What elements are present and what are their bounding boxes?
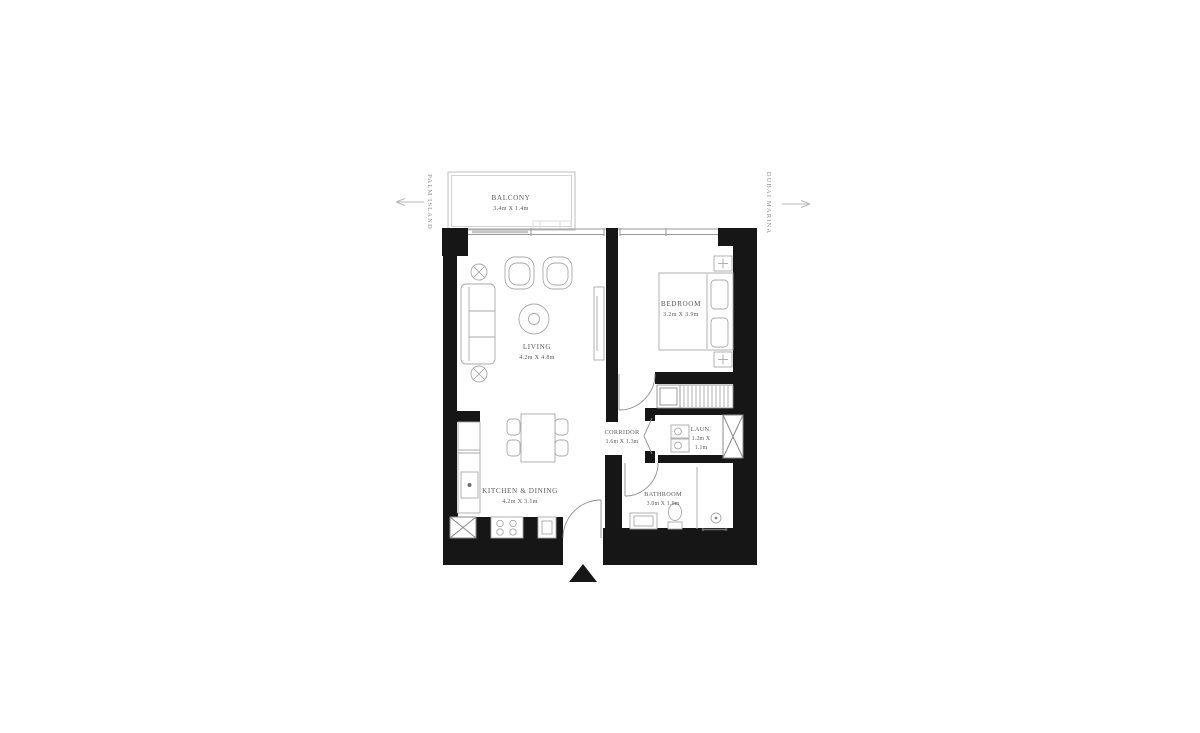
side-table-bottom (471, 366, 487, 382)
nightstand-bottom (714, 352, 732, 367)
dining-table-set (507, 414, 568, 462)
side-table-top (471, 264, 487, 280)
palm-island-label: PALM ISLAND (426, 174, 433, 230)
floor-plan-page: BALCONY 3.4m X 1.4m LIVING 4.2m X 4.8m B… (0, 0, 1200, 733)
dubai-marina-arrow-icon (782, 201, 810, 208)
washer-dryer-stack (671, 425, 689, 452)
balcony-lounge-sketch (533, 221, 571, 229)
shaft-closet-x (723, 415, 743, 458)
window-lines (448, 228, 755, 236)
compass-labels: PALM ISLAND DUBAI MARINA (426, 172, 772, 234)
dishwasher (538, 517, 556, 538)
laundry-label: LAUN. (691, 426, 712, 433)
laundry-bifold-door (644, 418, 652, 454)
entry-recess (563, 538, 603, 565)
entry-door (563, 500, 601, 538)
laundry-dims-1: 1.2m X (692, 436, 711, 442)
wardrobe (657, 385, 733, 408)
nightstand-top (714, 256, 732, 271)
entry-triangle-marker (569, 564, 597, 582)
armchair-2 (543, 257, 572, 289)
balcony-dims: 3.4m X 1.4m (493, 206, 528, 212)
bedroom-dims: 3.2m X 3.9m (663, 312, 698, 318)
dubai-marina-label: DUBAI MARINA (765, 172, 772, 234)
tv-console (594, 287, 604, 360)
coffee-table (519, 304, 549, 334)
armchair-1 (505, 257, 534, 289)
laundry-dims-2: 1.1m (695, 445, 708, 451)
toilet (668, 504, 682, 530)
sofa (461, 284, 495, 364)
bedroom-label: BEDROOM (661, 300, 701, 308)
kitchen-shaft-x (450, 517, 476, 538)
bathroom-label: BATHROOM (644, 491, 682, 498)
corridor-dims: 1.6m X 1.3m (606, 439, 639, 445)
cooktop (491, 517, 523, 538)
bathroom-dims: 3.0m X 1.9m (647, 501, 680, 507)
floor-plan-drawing: BALCONY 3.4m X 1.4m LIVING 4.2m X 4.8m B… (0, 0, 1200, 733)
corridor-label: CORRIDOR (605, 429, 640, 436)
living-dims: 4.2m X 4.8m (519, 355, 554, 361)
palm-island-arrow-icon (396, 199, 424, 206)
kitchen-dims: 4.2m X 3.1m (502, 499, 537, 505)
bedroom-door (619, 374, 655, 410)
living-label: LIVING (523, 343, 551, 351)
shower-drain (711, 513, 721, 523)
kitchen-label: KITCHEN & DINING (482, 487, 558, 495)
kitchen-counter (458, 422, 480, 513)
bathroom-sink (630, 513, 657, 529)
balcony-label: BALCONY (492, 194, 531, 202)
